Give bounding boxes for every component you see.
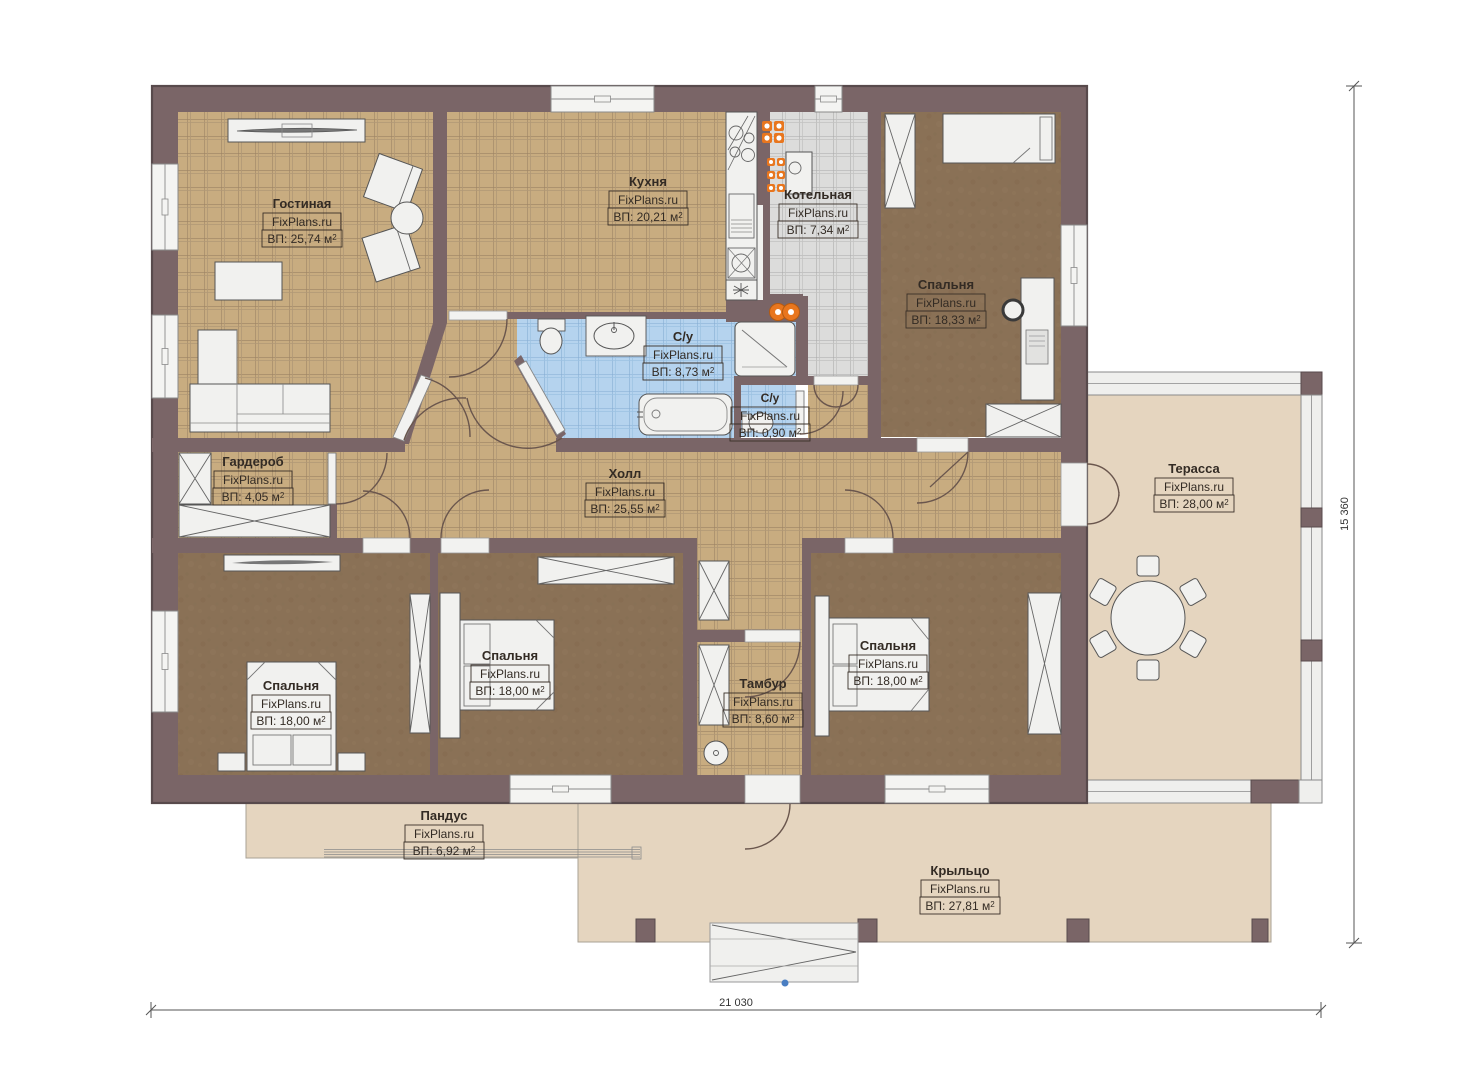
svg-text:Кухня: Кухня [629,174,667,189]
svg-text:ВП: 18,00 м2: ВП: 18,00 м2 [256,714,326,728]
svg-text:ВП: 18,33 м2: ВП: 18,33 м2 [911,313,981,327]
svg-text:FixPlans.ru: FixPlans.ru [788,206,848,220]
svg-text:Крыльцо: Крыльцо [930,863,989,878]
svg-text:Гардероб: Гардероб [222,454,283,469]
svg-text:FixPlans.ru: FixPlans.ru [595,485,655,499]
svg-text:ВП: 6,92 м2: ВП: 6,92 м2 [413,844,476,858]
svg-text:ВП: 18,00 м2: ВП: 18,00 м2 [853,674,923,688]
svg-text:FixPlans.ru: FixPlans.ru [261,697,321,711]
svg-text:ВП: 8,60 м2: ВП: 8,60 м2 [732,712,795,726]
svg-text:FixPlans.ru: FixPlans.ru [858,657,918,671]
svg-text:Пандус: Пандус [421,808,468,823]
svg-text:ВП: 7,34 м2: ВП: 7,34 м2 [787,223,850,237]
svg-text:ВП: 4,05 м2: ВП: 4,05 м2 [222,490,285,504]
svg-text:FixPlans.ru: FixPlans.ru [733,695,793,709]
svg-text:Терасса: Терасса [1168,461,1220,476]
svg-text:ВП: 18,00 м2: ВП: 18,00 м2 [475,684,545,698]
svg-text:Спальня: Спальня [860,638,916,653]
svg-text:Спальня: Спальня [482,648,538,663]
svg-text:Гостиная: Гостиная [273,196,332,211]
svg-text:Тамбур: Тамбур [739,676,786,691]
svg-text:С/у: С/у [673,329,694,344]
svg-text:ВП: 25,55 м2: ВП: 25,55 м2 [590,502,660,516]
svg-text:ВП: 25,74 м2: ВП: 25,74 м2 [267,232,337,246]
svg-text:FixPlans.ru: FixPlans.ru [272,215,332,229]
svg-text:FixPlans.ru: FixPlans.ru [223,473,283,487]
svg-text:Спальня: Спальня [263,678,319,693]
svg-text:15 360: 15 360 [1339,497,1351,531]
svg-text:FixPlans.ru: FixPlans.ru [480,667,540,681]
svg-text:21 030: 21 030 [719,997,753,1009]
svg-text:ВП: 20,21 м2: ВП: 20,21 м2 [613,210,683,224]
svg-text:С/у: С/у [761,391,780,405]
svg-text:FixPlans.ru: FixPlans.ru [1164,480,1224,494]
svg-text:Холл: Холл [609,466,642,481]
svg-text:FixPlans.ru: FixPlans.ru [653,348,713,362]
svg-text:ВП: 27,81 м2: ВП: 27,81 м2 [925,899,995,913]
svg-text:ВП: 8,73 м2: ВП: 8,73 м2 [652,365,715,379]
svg-text:FixPlans.ru: FixPlans.ru [618,193,678,207]
svg-text:ВП: 0,90 м2: ВП: 0,90 м2 [739,426,802,440]
svg-text:FixPlans.ru: FixPlans.ru [414,827,474,841]
svg-text:ВП: 28,00 м2: ВП: 28,00 м2 [1159,497,1229,511]
svg-text:FixPlans.ru: FixPlans.ru [740,409,800,423]
svg-text:FixPlans.ru: FixPlans.ru [916,296,976,310]
svg-text:FixPlans.ru: FixPlans.ru [930,882,990,896]
svg-text:Спальня: Спальня [918,277,974,292]
svg-text:Котельная: Котельная [784,187,852,202]
